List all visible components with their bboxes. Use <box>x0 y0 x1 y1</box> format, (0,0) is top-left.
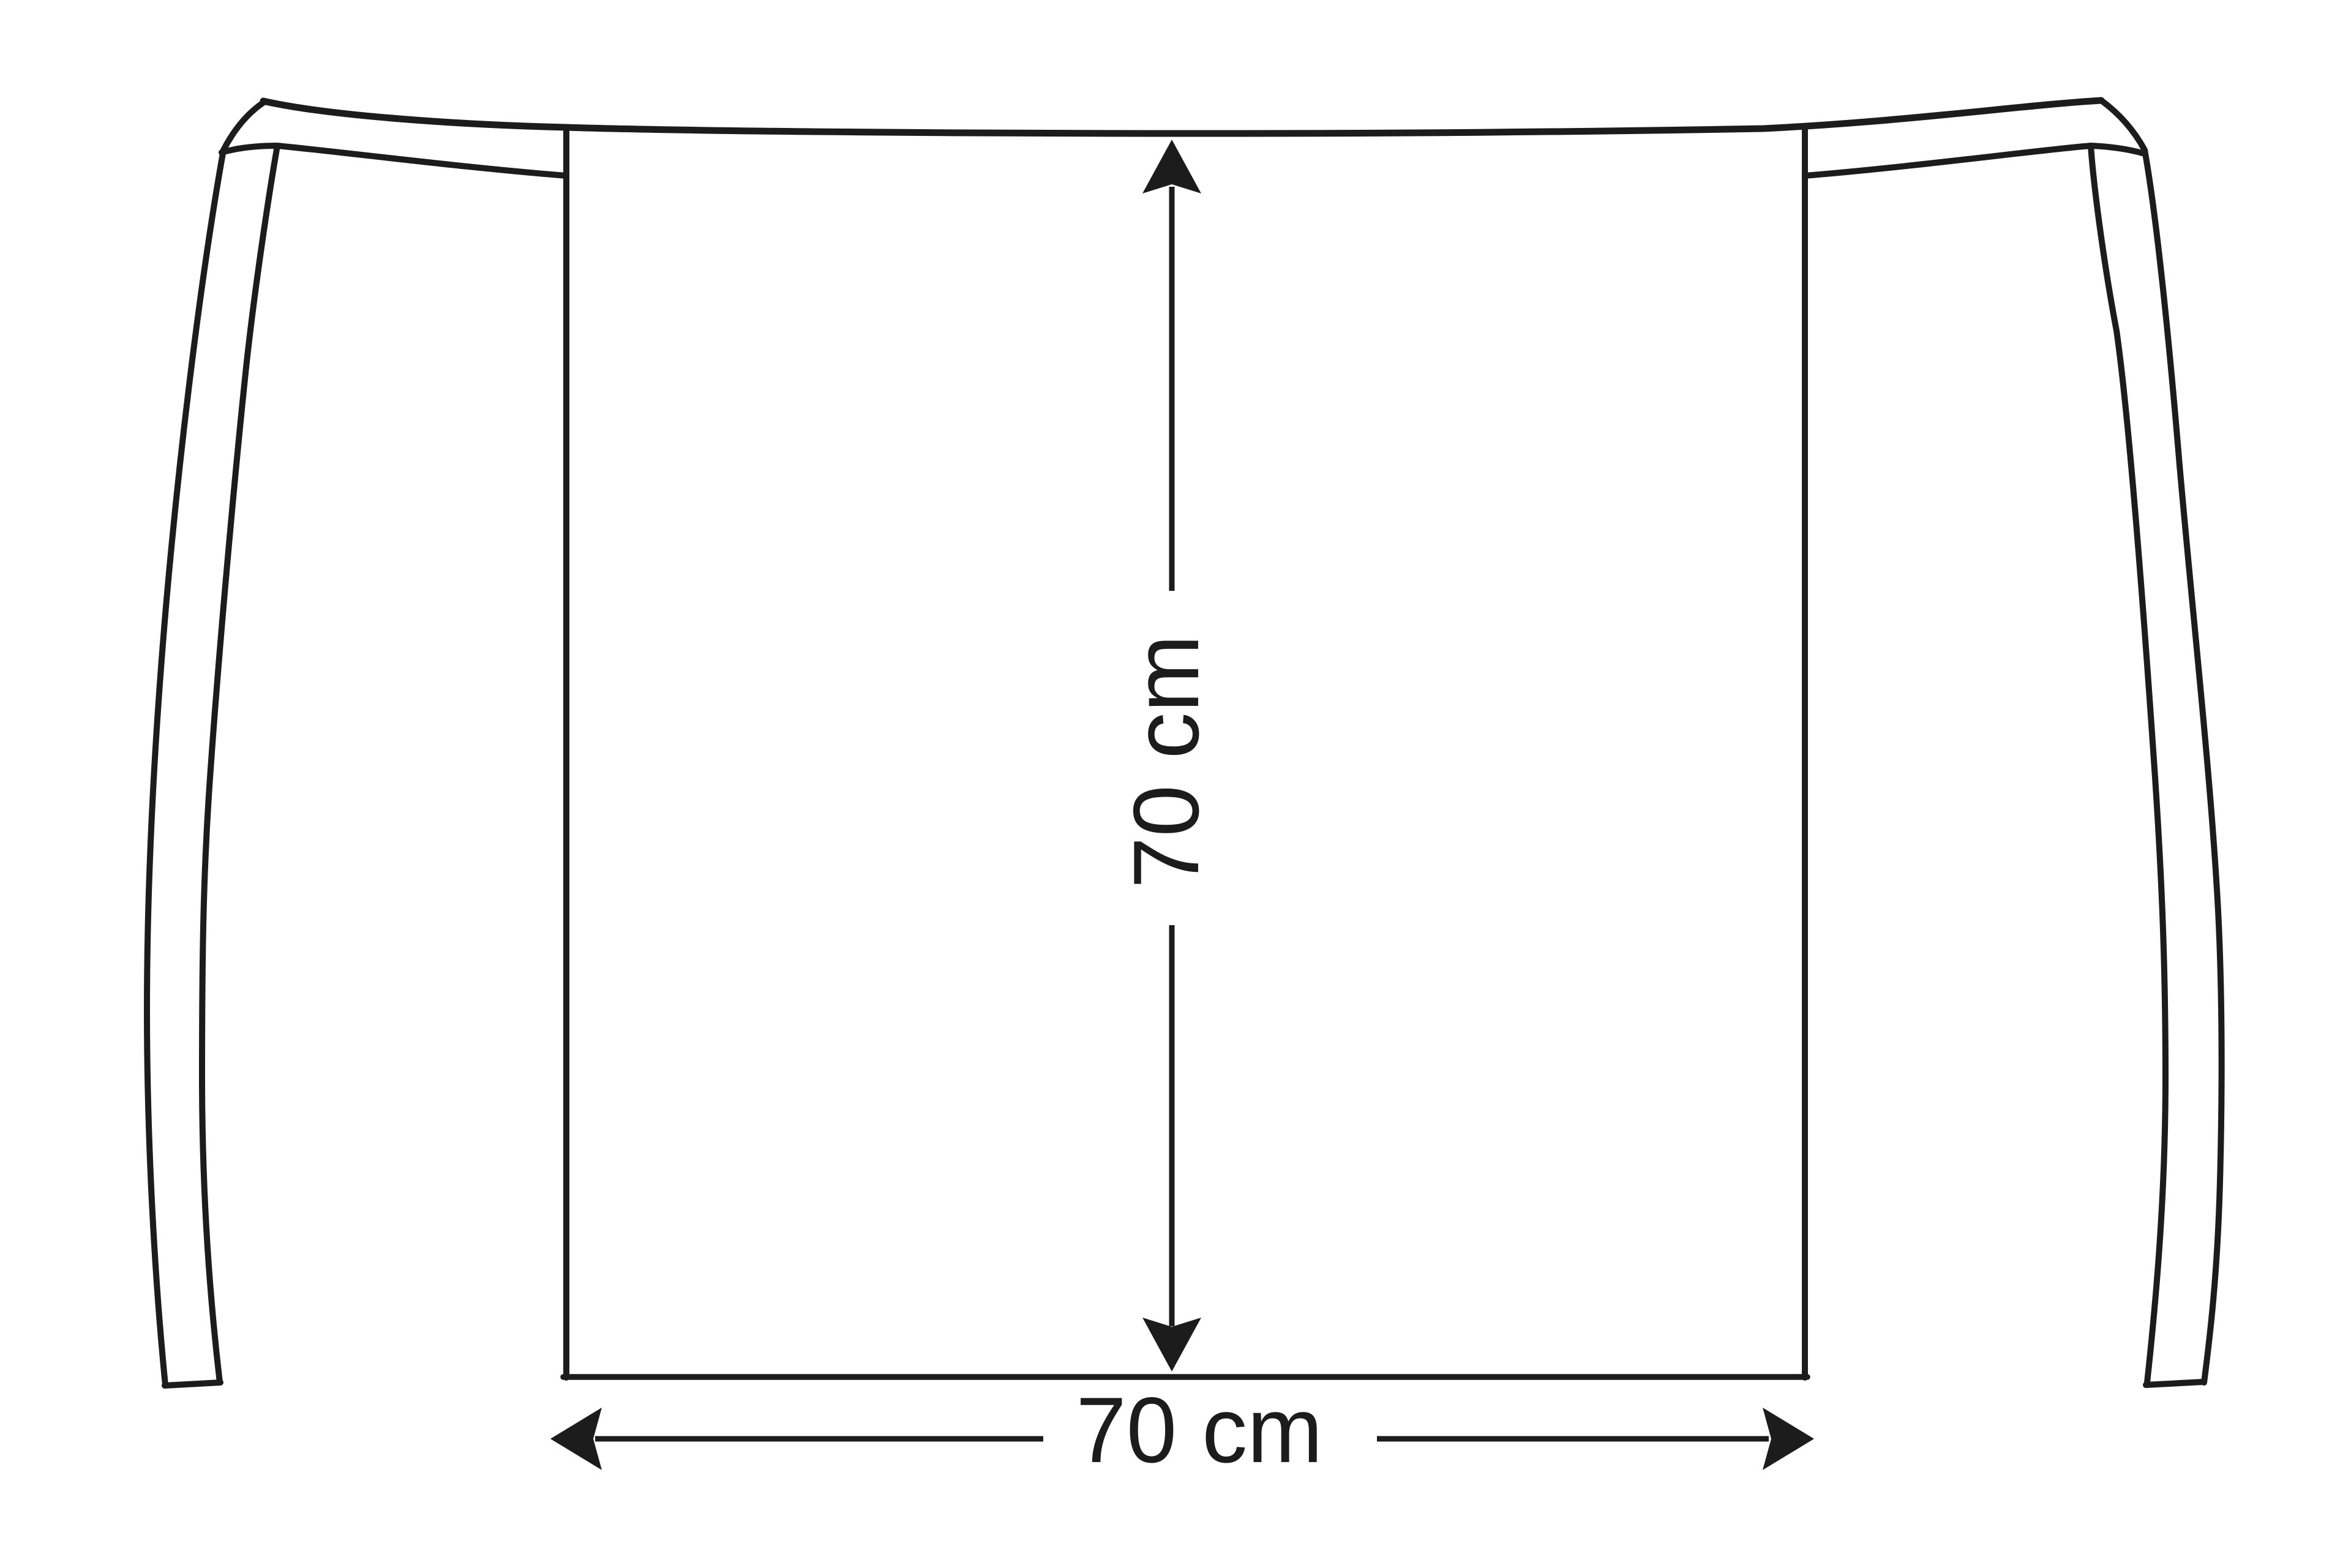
svg-text:70 cm: 70 cm <box>1076 1378 1323 1482</box>
svg-text:70 cm: 70 cm <box>1114 635 1218 889</box>
